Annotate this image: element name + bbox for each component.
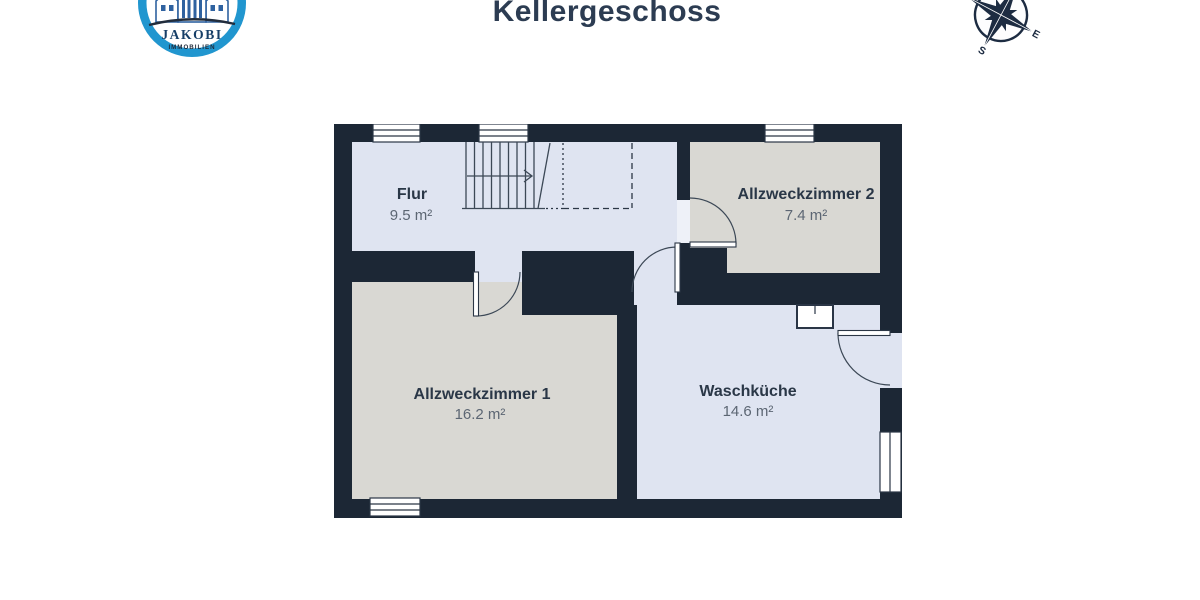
room-name: Allzweckzimmer 2 [738, 186, 875, 203]
door-exterior [838, 331, 890, 386]
compass-rose-icon: E S [938, 0, 1068, 64]
room-area: 9.5 m² [390, 207, 433, 224]
room-area: 7.4 m² [785, 207, 828, 224]
room-label-flur: Flur [397, 186, 427, 204]
room-name: Allzweckzimmer 1 [414, 386, 551, 403]
door-az2-leaf [690, 242, 736, 247]
door-exterior-leaf [838, 331, 890, 336]
plan-linework [334, 124, 902, 518]
door-az2 [690, 198, 736, 247]
floorplan-page: JAKOBI IMMOBILIEN Kellergeschoss E S [0, 0, 1200, 600]
stairwell-dashed-outline [546, 143, 632, 209]
door-waschkueche-leaf [675, 243, 680, 292]
room-name: Flur [397, 186, 427, 203]
compass-label-south: S [976, 44, 988, 58]
door-az1 [474, 272, 521, 316]
room-label-az2: Allzweckzimmer 2 [738, 186, 875, 204]
window-top-allzweckzimmer2 [765, 124, 814, 142]
room-label-az1: Allzweckzimmer 1 [414, 386, 551, 404]
door-waschkueche [632, 243, 680, 292]
logo-subtitle: IMMOBILIEN [168, 44, 215, 51]
room-area-az1: 16.2 m² [455, 406, 506, 424]
room-name: Waschküche [699, 383, 796, 400]
staircase [462, 142, 550, 209]
window-right-waschkueche [880, 432, 901, 492]
room-area-flur: 9.5 m² [390, 207, 433, 225]
sink-fixture [797, 305, 833, 328]
room-area: 14.6 m² [723, 403, 774, 420]
window-top-flur [373, 124, 420, 142]
room-area-az2: 7.4 m² [785, 207, 828, 225]
window-top-stairs [479, 124, 528, 142]
room-area-wk: 14.6 m² [723, 403, 774, 421]
logo-name: JAKOBI [161, 27, 222, 42]
room-area: 16.2 m² [455, 406, 506, 423]
window-bottom-allzweckzimmer1 [370, 498, 420, 516]
floorplan-walls: Flur 9.5 m² Allzweckzimmer 2 7.4 m² Allz… [334, 124, 902, 518]
room-label-wk: Waschküche [699, 383, 796, 401]
door-az1-leaf [474, 272, 479, 316]
compass-label-east: E [1030, 28, 1042, 42]
